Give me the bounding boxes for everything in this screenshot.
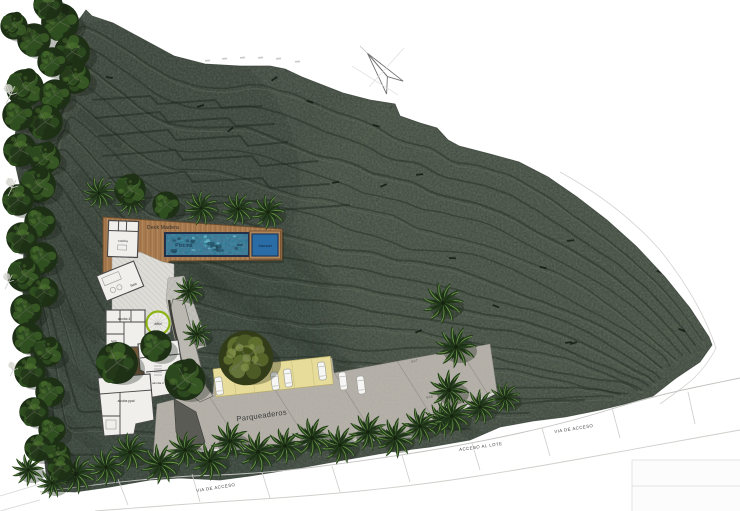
svg-text:árbol: árbol: [154, 322, 162, 326]
svg-text:Deck Madera: Deck Madera: [147, 225, 179, 231]
svg-text:alcoba 2: alcoba 2: [152, 381, 164, 385]
svg-text:Jacuzzi: Jacuzzi: [258, 243, 271, 248]
svg-text:alcoba 4: alcoba 4: [118, 317, 131, 321]
svg-text:cocina: cocina: [118, 239, 128, 243]
svg-text:alcoba ppal: alcoba ppal: [118, 399, 135, 403]
svg-text:Piscina: Piscina: [175, 243, 193, 249]
